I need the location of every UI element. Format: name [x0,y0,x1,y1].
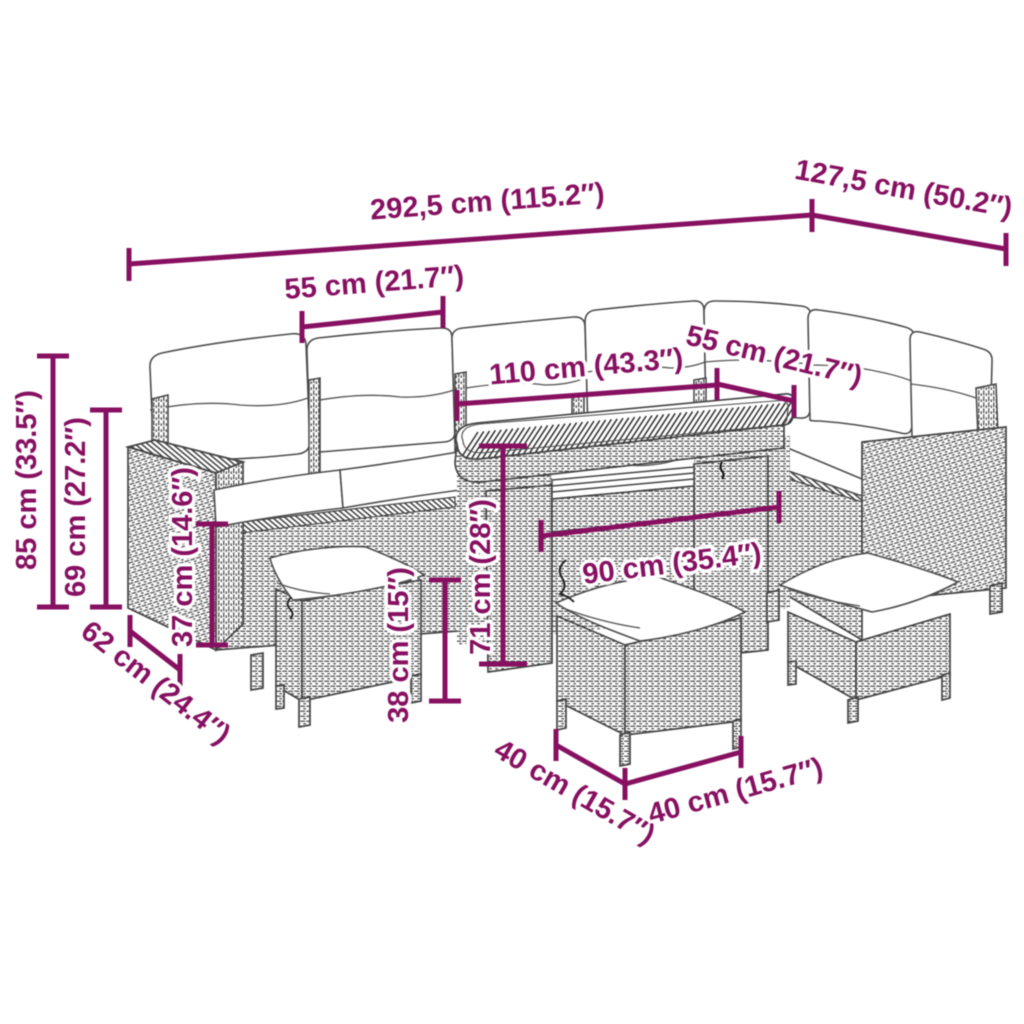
svg-text:71 cm (28″): 71 cm (28″) [465,499,497,655]
svg-text:38 cm (15″): 38 cm (15″) [383,567,415,723]
svg-text:85 cm (33.5″): 85 cm (33.5″) [11,390,43,570]
svg-text:69 cm (27.2″): 69 cm (27.2″) [60,417,92,597]
svg-text:37 cm (14.6″): 37 cm (14.6″) [167,467,199,647]
